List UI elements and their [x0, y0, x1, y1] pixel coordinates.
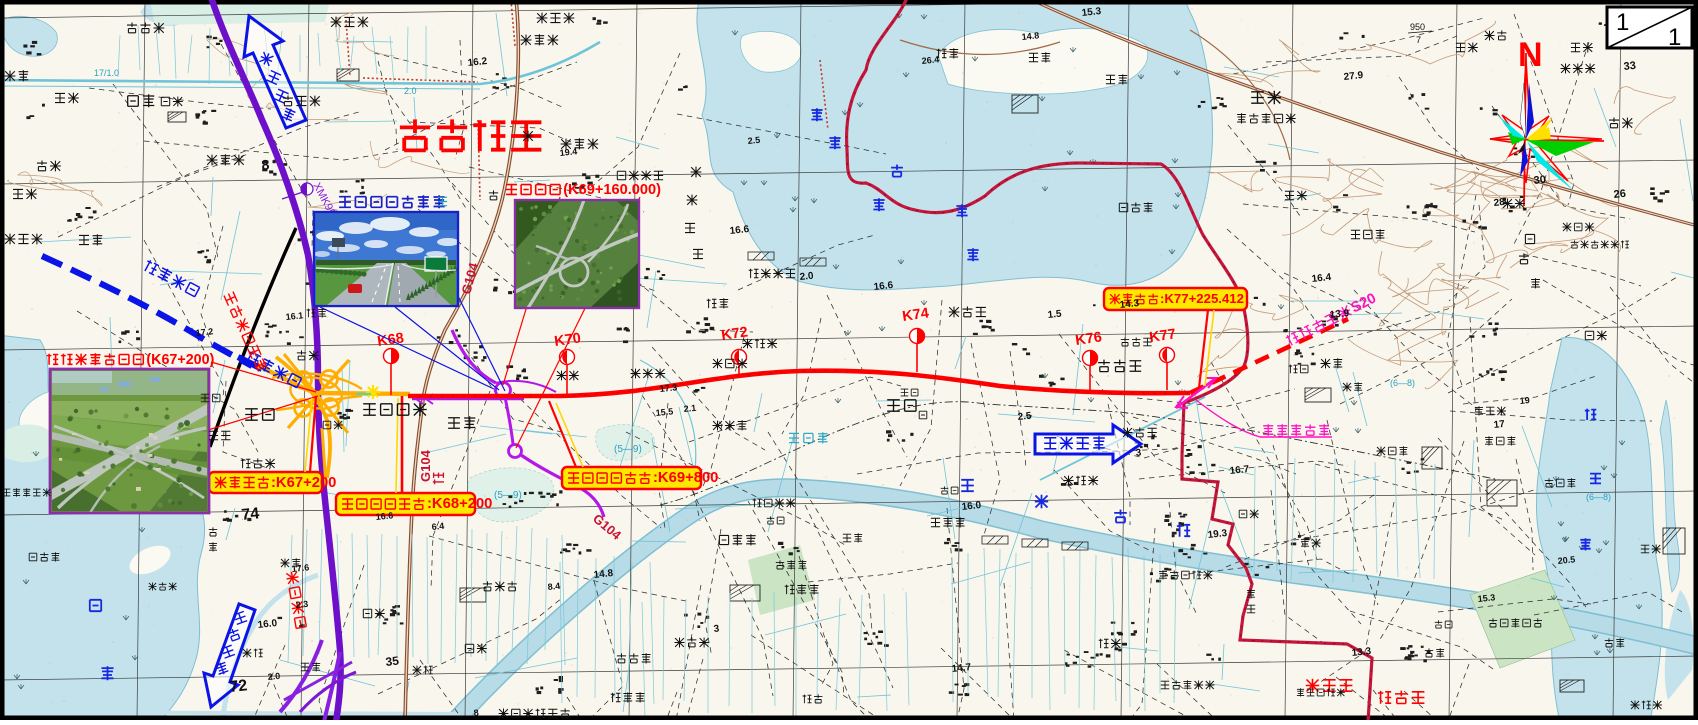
svg-text:1.5: 1.5: [1047, 309, 1062, 321]
svg-text:15.3: 15.3: [1477, 592, 1495, 604]
svg-text:(6—8): (6—8): [1586, 492, 1611, 502]
svg-text:16.6: 16.6: [729, 224, 750, 237]
svg-text:33: 33: [1623, 60, 1636, 73]
svg-text::K67+200: :K67+200: [271, 475, 336, 491]
svg-text:16.1: 16.1: [285, 310, 303, 322]
svg-text:14.8: 14.8: [1021, 30, 1039, 42]
svg-text::K77+225.412: :K77+225.412: [1160, 291, 1244, 306]
svg-text:16.2: 16.2: [467, 56, 488, 69]
svg-text:14.3: 14.3: [1119, 298, 1140, 311]
svg-text:26: 26: [1613, 188, 1626, 201]
svg-text:17.3: 17.3: [659, 382, 677, 394]
svg-text:13.3: 13.3: [1351, 646, 1372, 659]
svg-text:2.5: 2.5: [747, 135, 760, 146]
svg-text:16.7: 16.7: [1229, 464, 1250, 477]
svg-text:16.0: 16.0: [961, 500, 982, 513]
svg-text:17/1.0: 17/1.0: [94, 68, 119, 78]
svg-text:2.0: 2.0: [799, 271, 814, 283]
svg-text:14.8: 14.8: [593, 568, 614, 581]
svg-text:2.3: 2.3: [295, 599, 308, 610]
svg-text:7: 7: [1416, 35, 1421, 45]
svg-text:19.4: 19.4: [559, 146, 577, 158]
svg-text::K69+800: :K69+800: [653, 470, 718, 486]
svg-text:30: 30: [1533, 174, 1546, 187]
svg-text:19.3: 19.3: [1207, 528, 1228, 541]
svg-text:16.4: 16.4: [1311, 272, 1332, 285]
svg-text:6.4: 6.4: [431, 521, 444, 532]
svg-text:14.7: 14.7: [951, 662, 972, 675]
svg-text:2.0: 2.0: [267, 671, 280, 682]
svg-text:8: 8: [473, 708, 479, 718]
svg-text:1: 1: [1668, 24, 1681, 51]
svg-text:74: 74: [241, 505, 261, 524]
svg-text:G104: G104: [418, 449, 433, 482]
svg-text:15.5: 15.5: [655, 406, 673, 418]
svg-text:2.5: 2.5: [1017, 411, 1032, 423]
svg-text:20.5: 20.5: [1557, 554, 1575, 566]
svg-text:17.2: 17.2: [195, 326, 213, 338]
svg-text:27.9: 27.9: [1343, 70, 1364, 83]
svg-text:8.4: 8.4: [547, 581, 560, 592]
svg-text:(5—9): (5—9): [494, 490, 522, 501]
svg-text:N: N: [1518, 36, 1543, 74]
svg-text:35: 35: [385, 654, 400, 669]
svg-text:28: 28: [1493, 197, 1506, 209]
svg-text::K68+200: :K68+200: [427, 496, 492, 512]
svg-text:16.6: 16.6: [873, 280, 894, 293]
svg-text:950: 950: [1410, 22, 1425, 32]
svg-text:2.0: 2.0: [404, 86, 417, 96]
svg-text:16.6: 16.6: [375, 510, 393, 522]
svg-text:72: 72: [229, 677, 249, 696]
svg-text:19: 19: [1519, 395, 1530, 406]
svg-text:26.4: 26.4: [921, 54, 939, 66]
svg-text:(5—9): (5—9): [614, 444, 642, 455]
svg-text:13.9: 13.9: [1329, 308, 1350, 321]
svg-text:16.0: 16.0: [257, 618, 278, 631]
svg-text:2.1: 2.1: [683, 403, 696, 414]
svg-text:15.3: 15.3: [1081, 6, 1102, 19]
svg-text:(6—8): (6—8): [1390, 378, 1415, 388]
svg-text:17.6: 17.6: [291, 562, 309, 574]
svg-text:(K67+200): (K67+200): [146, 352, 214, 368]
svg-text:17: 17: [1493, 419, 1506, 431]
svg-text:(K69+160.000): (K69+160.000): [563, 182, 661, 198]
svg-text:1: 1: [1616, 9, 1629, 36]
